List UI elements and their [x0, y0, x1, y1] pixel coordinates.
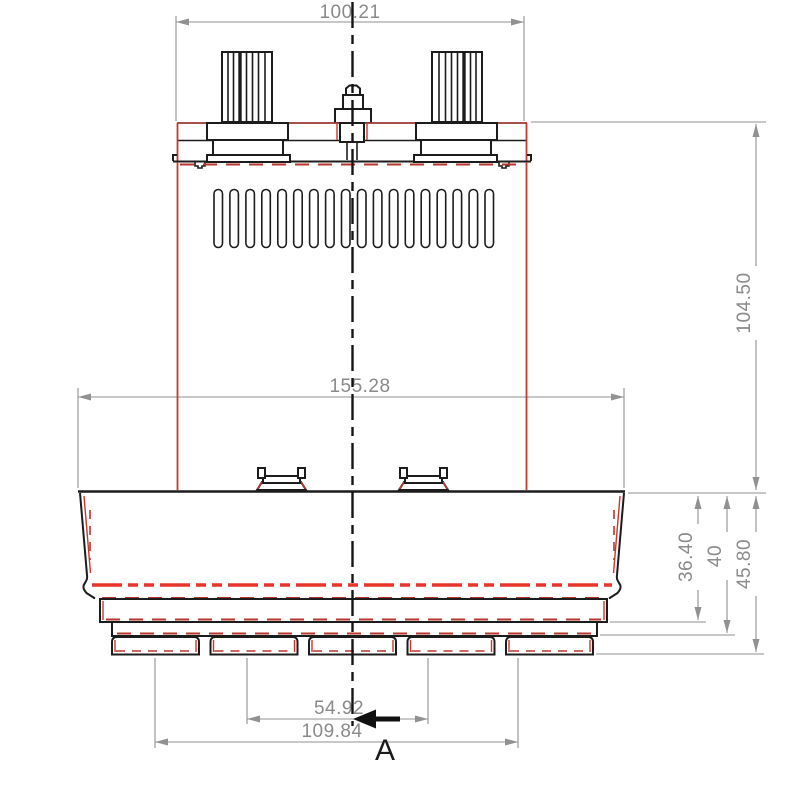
dim-housing-width: 155.28	[78, 376, 624, 488]
dim-fan-step-1: 36.40	[610, 496, 706, 622]
dim-fan-step-1-label: 36.40	[676, 532, 697, 582]
body-clip-left	[257, 468, 306, 490]
dim-foot-span-inner: 54.92	[247, 658, 428, 724]
dim-body-height: 104.50	[531, 122, 766, 493]
body-clip-right	[399, 468, 448, 490]
dim-body-height-label: 104.50	[734, 272, 755, 333]
dim-fan-step-2-label: 40	[705, 545, 726, 567]
section-label: A	[375, 734, 395, 767]
drawing-canvas: 100.21 155.28 104.50 36.4	[0, 0, 800, 800]
dim-fan-step-3-label: 45.80	[734, 539, 755, 589]
vent-slots	[214, 190, 494, 248]
dim-housing-width-label: 155.28	[329, 376, 390, 397]
technical-drawing: 100.21 155.28 104.50 36.4	[0, 0, 800, 800]
dim-top-width-label: 100.21	[319, 2, 380, 23]
dim-fan-step-2: 40	[600, 496, 735, 635]
dim-foot-span-inner-label: 54.92	[314, 698, 364, 719]
brush-tower-left	[222, 52, 272, 122]
brush-tower-right	[432, 52, 482, 122]
